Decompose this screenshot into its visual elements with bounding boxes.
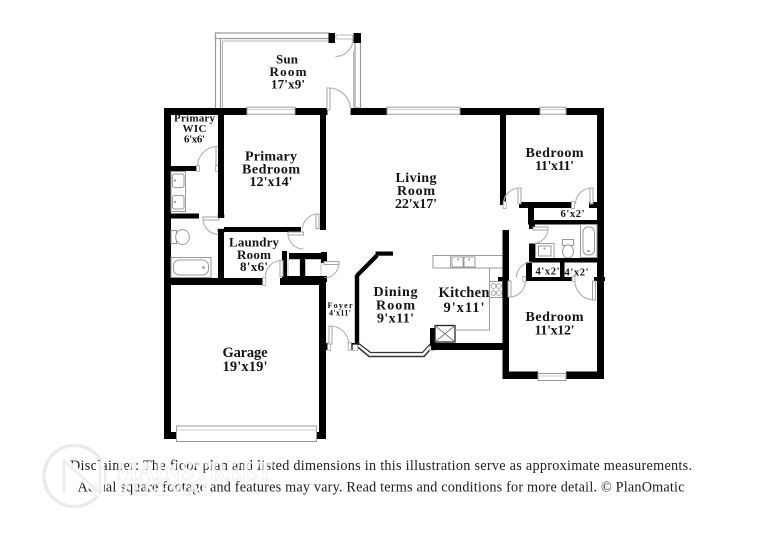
svg-text:RENEWAL: RENEWAL: [117, 480, 213, 501]
svg-text:17'x9': 17'x9': [271, 77, 305, 92]
svg-text:19'x19': 19'x19': [223, 359, 268, 375]
svg-text:11'x12': 11'x12': [535, 324, 575, 339]
svg-text:4'x11': 4'x11': [329, 309, 351, 318]
svg-text:8'x6': 8'x6': [240, 259, 268, 274]
svg-text:11'x11': 11'x11': [535, 159, 574, 174]
svg-text:6'x2': 6'x2': [561, 209, 585, 220]
svg-text:9'x11': 9'x11': [444, 300, 485, 316]
svg-text:Kitchen: Kitchen: [439, 285, 490, 301]
svg-text:4'x2': 4'x2': [536, 267, 560, 278]
svg-text:12'x14': 12'x14': [250, 175, 293, 190]
svg-text:4'x2': 4'x2': [565, 268, 589, 279]
svg-text:9'x11': 9'x11': [377, 312, 414, 327]
svg-text:6'x6': 6'x6': [184, 133, 205, 145]
svg-text:22'x17': 22'x17': [395, 197, 437, 212]
